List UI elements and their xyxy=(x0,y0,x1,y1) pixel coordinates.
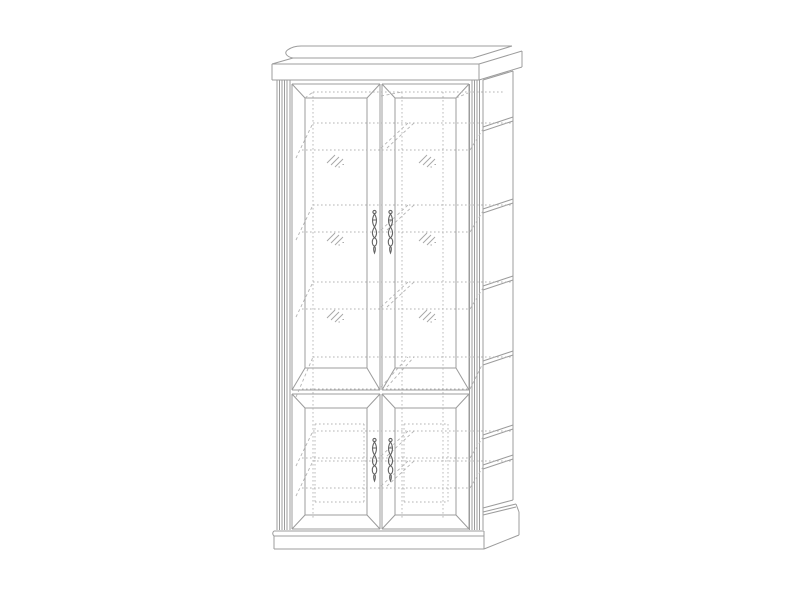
drawing-background xyxy=(0,0,801,600)
cabinet-technical-drawing xyxy=(0,0,801,600)
furniture-drawing-page xyxy=(0,0,801,600)
